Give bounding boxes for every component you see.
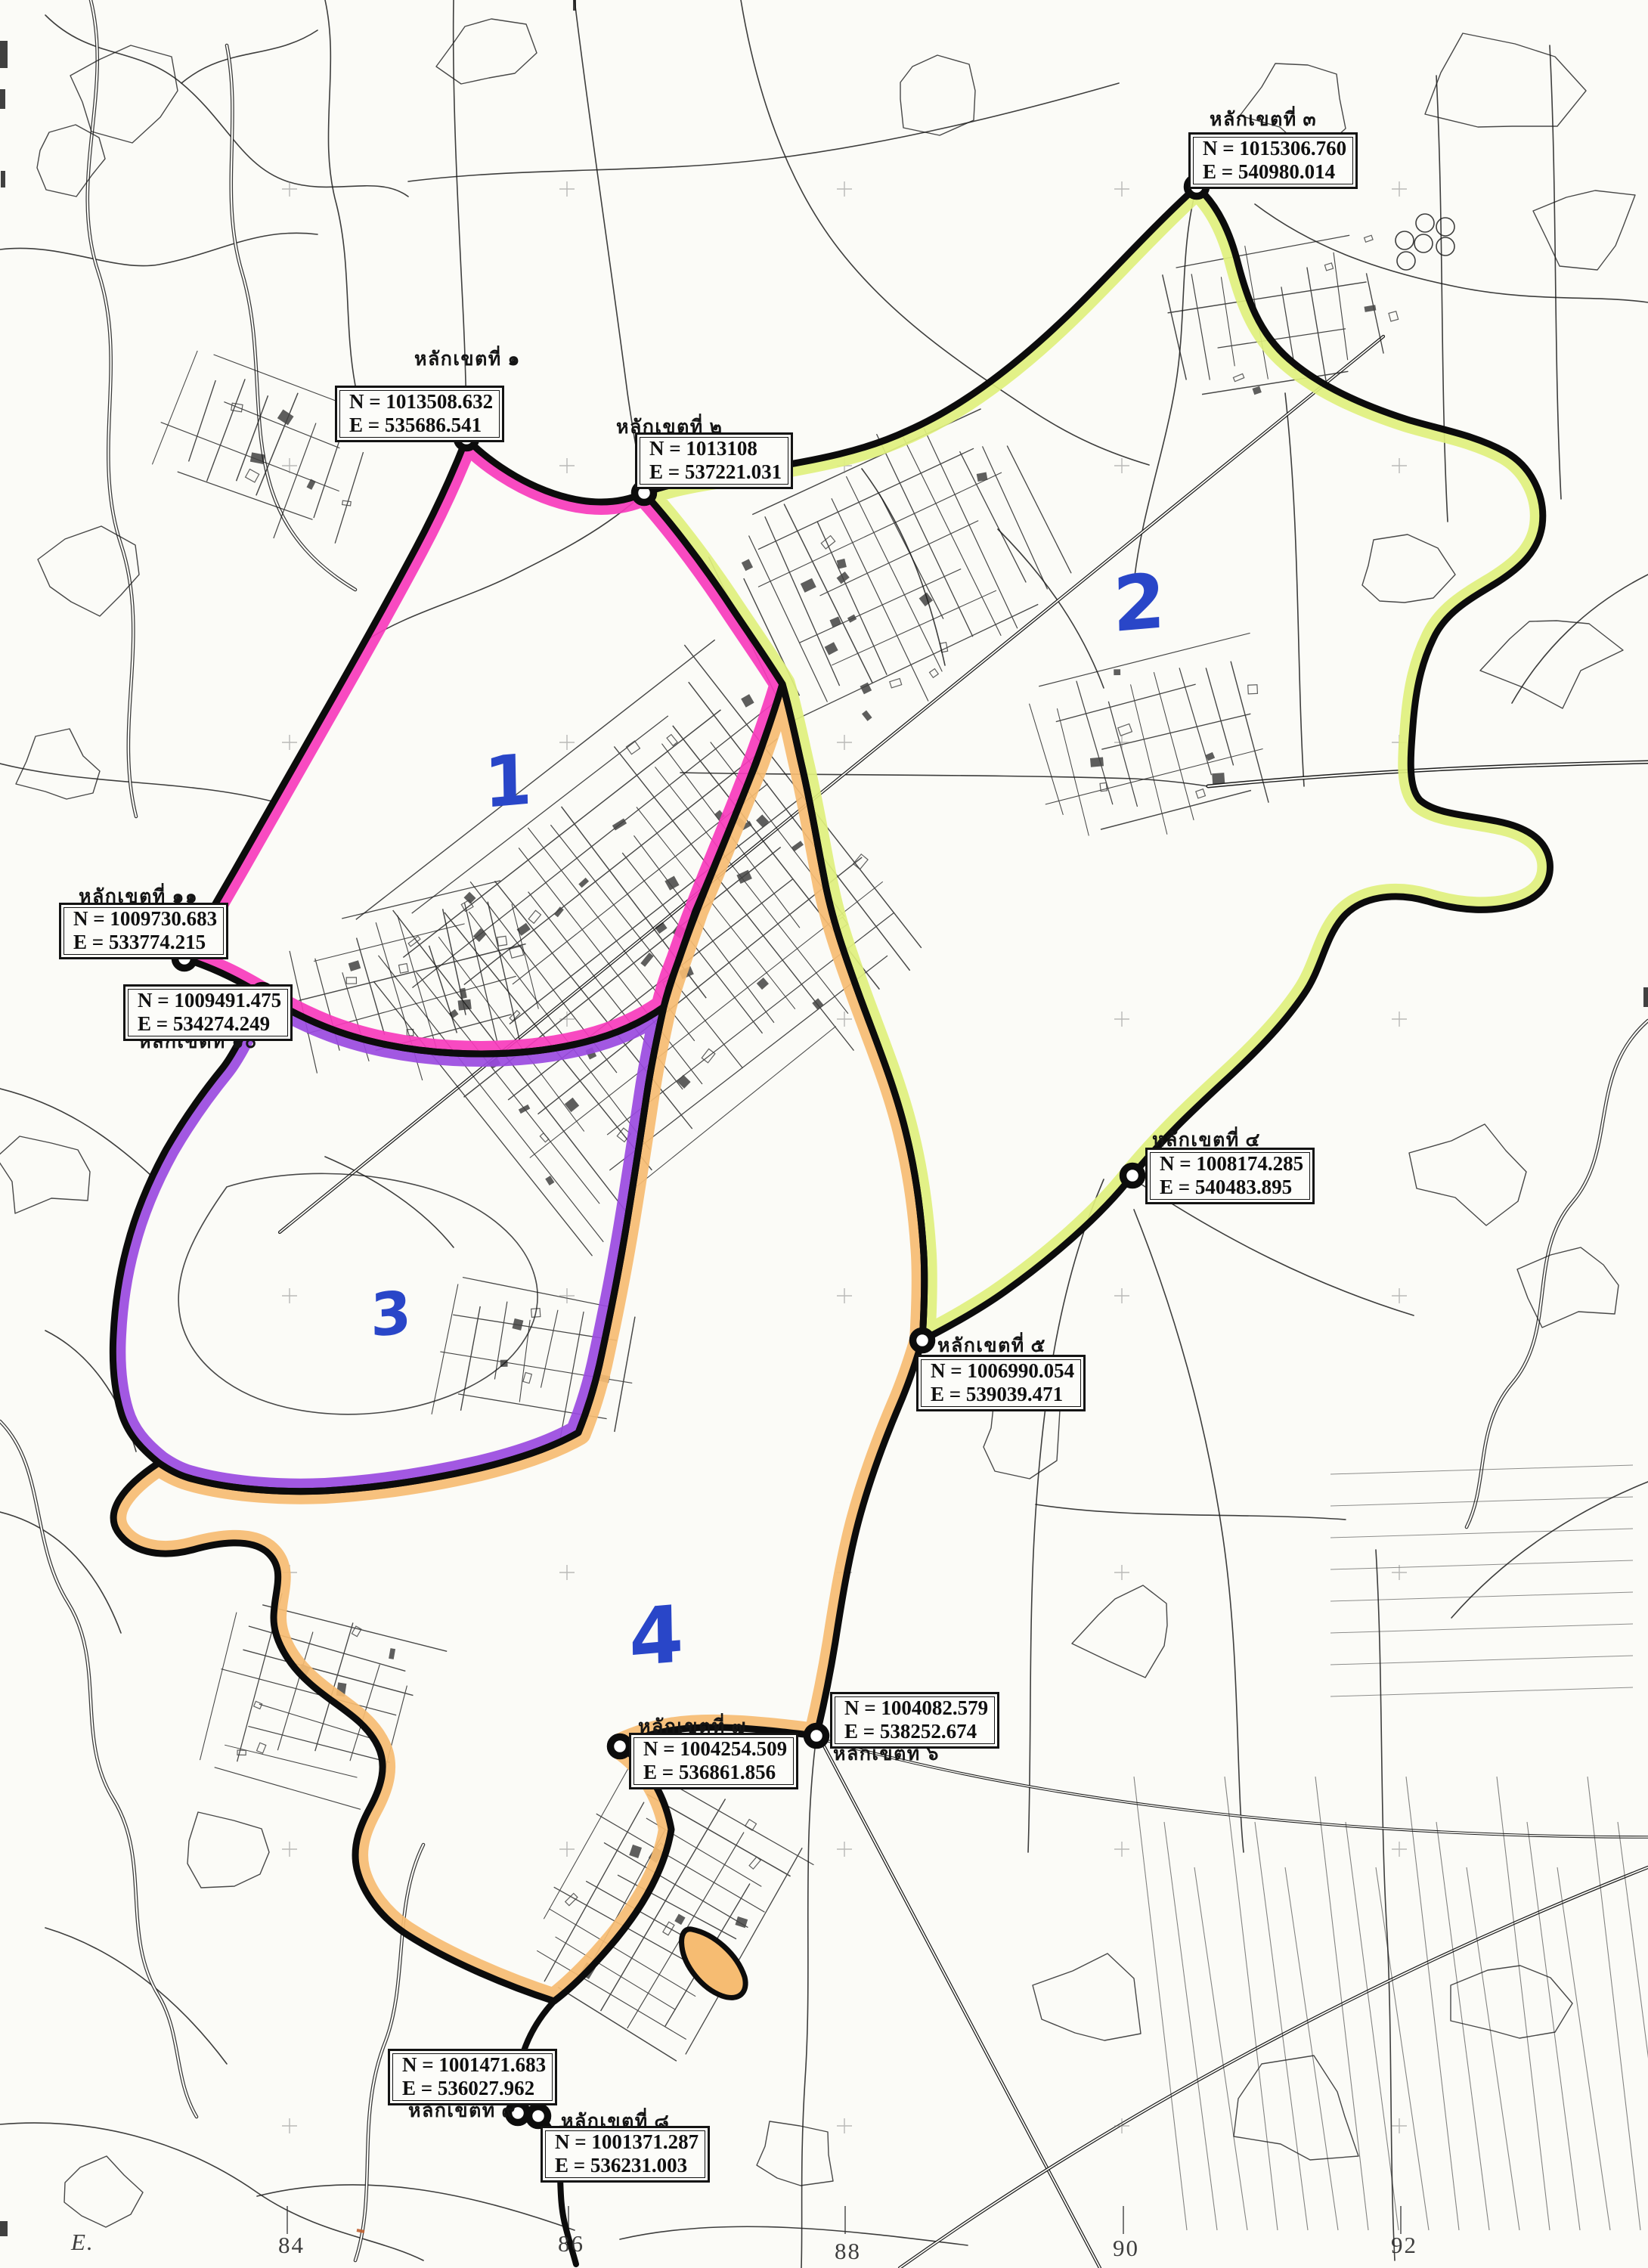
- marker-7-northing: N = 1004254.509: [643, 1737, 787, 1761]
- zone-number-4: 4: [628, 1594, 684, 1678]
- marker-coordinates-box-1: N = 1013508.632E = 535686.541: [335, 386, 504, 442]
- marker-4-easting: E = 540483.895: [1160, 1176, 1303, 1199]
- zone-boundaries: [113, 187, 1550, 2264]
- marker-10-northing: N = 1009491.475: [138, 989, 281, 1012]
- boundary-marker-dot-7: [611, 1737, 630, 1756]
- zone-number-3: 3: [370, 1284, 411, 1346]
- marker-4-northing: N = 1008174.285: [1160, 1152, 1303, 1176]
- boundary-marker-dot-4: [1123, 1167, 1142, 1185]
- marker-title-1: หลักเขตที่ ๑: [414, 344, 521, 374]
- marker-6-easting: E = 538252.674: [844, 1720, 988, 1743]
- marker-8-northing: N = 1001371.287: [555, 2130, 699, 2154]
- marker-8-easting: E = 536231.003: [555, 2154, 699, 2177]
- marker-9-easting: E = 536027.962: [402, 2077, 546, 2100]
- marker-coordinates-box-8: N = 1001371.287E = 536231.003: [541, 2126, 710, 2183]
- base-map-linework: [0, 0, 1648, 2268]
- marker-coordinates-box-3: N = 1015306.760E = 540980.014: [1188, 132, 1358, 189]
- marker-11-easting: E = 533774.215: [73, 931, 217, 954]
- grid-easting-84: 84: [278, 2232, 305, 2259]
- marker-coordinates-box-9: N = 1001471.683E = 536027.962: [388, 2049, 557, 2105]
- marker-coordinates-box-6: N = 1004082.579E = 538252.674: [830, 1692, 999, 1749]
- marker-9-northing: N = 1001471.683: [402, 2053, 546, 2077]
- marker-1-northing: N = 1013508.632: [349, 390, 493, 414]
- marker-3-easting: E = 540980.014: [1203, 160, 1346, 184]
- grid-easting-86: 86: [558, 2230, 584, 2257]
- marker-5-northing: N = 1006990.054: [931, 1359, 1074, 1383]
- marker-2-northing: N = 1013108: [649, 437, 782, 460]
- marker-3-northing: N = 1015306.760: [1203, 137, 1346, 160]
- scanned-boundary-map: หลักเขตที่ ๑N = 1013508.632E = 535686.54…: [0, 0, 1648, 2268]
- marker-11-northing: N = 1009730.683: [73, 907, 217, 931]
- grid-axis-label: E.: [71, 2229, 94, 2256]
- scan-edge-artifacts: [0, 0, 1648, 2236]
- marker-coordinates-box-2: N = 1013108E = 537221.031: [635, 432, 793, 489]
- marker-coordinates-box-10: N = 1009491.475E = 534274.249: [123, 984, 293, 1041]
- boundary-marker-dot-8: [529, 2107, 548, 2126]
- marker-coordinates-box-4: N = 1008174.285E = 540483.895: [1145, 1148, 1315, 1204]
- grid-easting-92: 92: [1391, 2232, 1417, 2259]
- map-canvas: [0, 0, 1648, 2268]
- boundary-marker-dot-6: [807, 1727, 826, 1746]
- marker-5-easting: E = 539039.471: [931, 1383, 1074, 1406]
- marker-coordinates-box-5: N = 1006990.054E = 539039.471: [916, 1355, 1086, 1411]
- boundary-marker-dot-5: [913, 1331, 932, 1350]
- marker-coordinates-box-7: N = 1004254.509E = 536861.856: [629, 1733, 798, 1789]
- marker-7-easting: E = 536861.856: [643, 1761, 787, 1784]
- marker-10-easting: E = 534274.249: [138, 1012, 281, 1036]
- marker-2-easting: E = 537221.031: [649, 460, 782, 484]
- zone-number-2: 2: [1112, 563, 1166, 643]
- zone-number-1: 1: [483, 745, 532, 819]
- grid-easting-88: 88: [835, 2238, 861, 2265]
- boundary-enclave: [682, 1929, 746, 1998]
- marker-1-easting: E = 535686.541: [349, 414, 493, 437]
- marker-coordinates-box-11: N = 1009730.683E = 533774.215: [59, 903, 228, 959]
- marker-6-northing: N = 1004082.579: [844, 1696, 988, 1720]
- grid-easting-90: 90: [1113, 2235, 1139, 2262]
- marker-title-3: หลักเขตที่ ๓: [1210, 104, 1317, 135]
